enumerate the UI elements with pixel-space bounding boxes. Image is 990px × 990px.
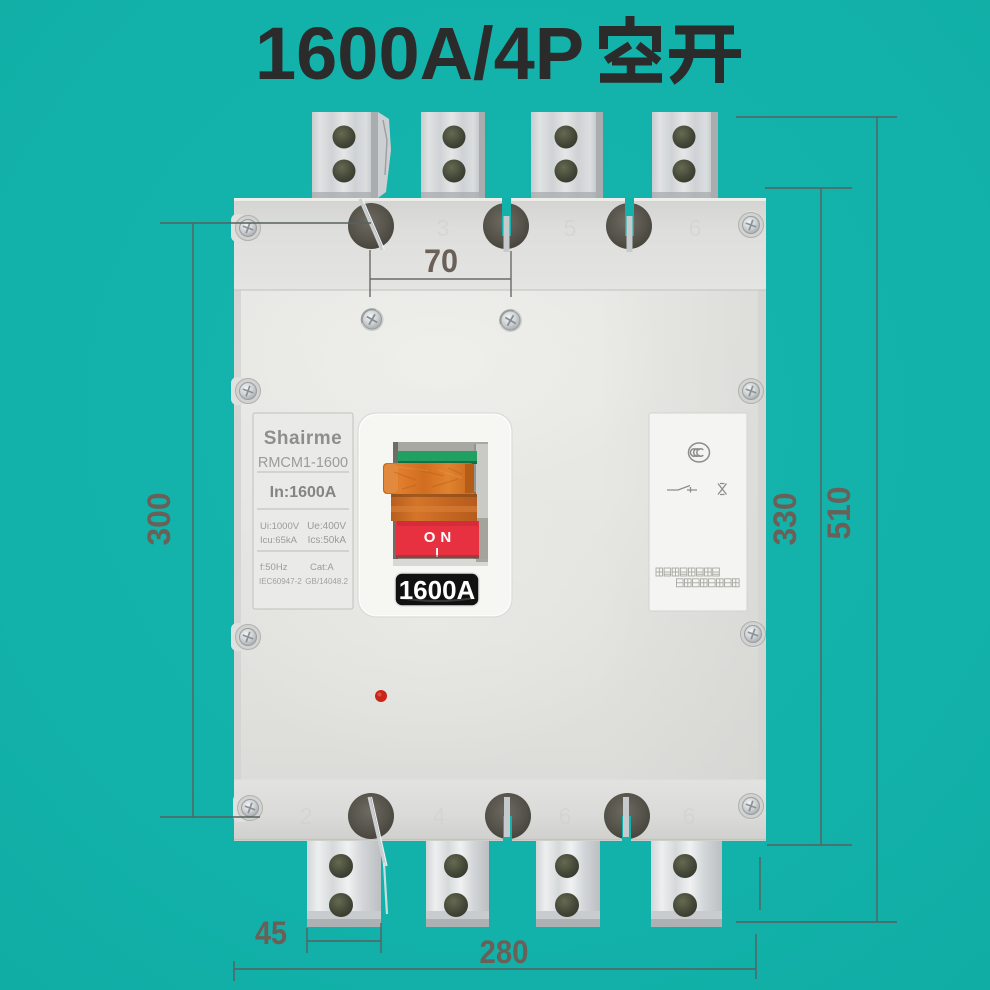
svg-text:45: 45 bbox=[255, 915, 287, 951]
svg-text:f:50Hz: f:50Hz bbox=[260, 562, 288, 573]
svg-text:330: 330 bbox=[767, 493, 803, 546]
svg-text:1600A: 1600A bbox=[399, 575, 476, 605]
svg-text:300: 300 bbox=[141, 493, 177, 546]
svg-text:280: 280 bbox=[480, 934, 529, 970]
svg-text:Cat:A: Cat:A bbox=[310, 562, 334, 573]
svg-text:IEC60947-2: IEC60947-2 bbox=[259, 577, 302, 586]
svg-text:Ue:400V: Ue:400V bbox=[307, 521, 346, 532]
svg-text:6: 6 bbox=[559, 803, 572, 829]
svg-text:6: 6 bbox=[683, 803, 696, 829]
svg-text:2: 2 bbox=[300, 803, 313, 829]
svg-text:Ui:1000V: Ui:1000V bbox=[260, 521, 300, 532]
svg-text:ON: ON bbox=[424, 529, 457, 546]
svg-text:Icu:65kA: Icu:65kA bbox=[260, 535, 298, 546]
svg-text:GB/14048.2: GB/14048.2 bbox=[305, 577, 348, 586]
svg-text:5: 5 bbox=[564, 215, 577, 241]
svg-text:In:1600A: In:1600A bbox=[270, 484, 337, 501]
svg-text:RMCM1-1600: RMCM1-1600 bbox=[258, 455, 348, 471]
svg-text:4: 4 bbox=[433, 803, 446, 829]
svg-text:Shairme: Shairme bbox=[264, 428, 342, 449]
svg-text:6: 6 bbox=[689, 215, 702, 241]
svg-text:70: 70 bbox=[424, 243, 458, 279]
svg-text:1600A/4P: 1600A/4P bbox=[255, 12, 584, 95]
svg-text:510: 510 bbox=[821, 487, 857, 540]
svg-text:Ics:50kA: Ics:50kA bbox=[308, 535, 347, 546]
svg-text:3: 3 bbox=[437, 215, 450, 241]
